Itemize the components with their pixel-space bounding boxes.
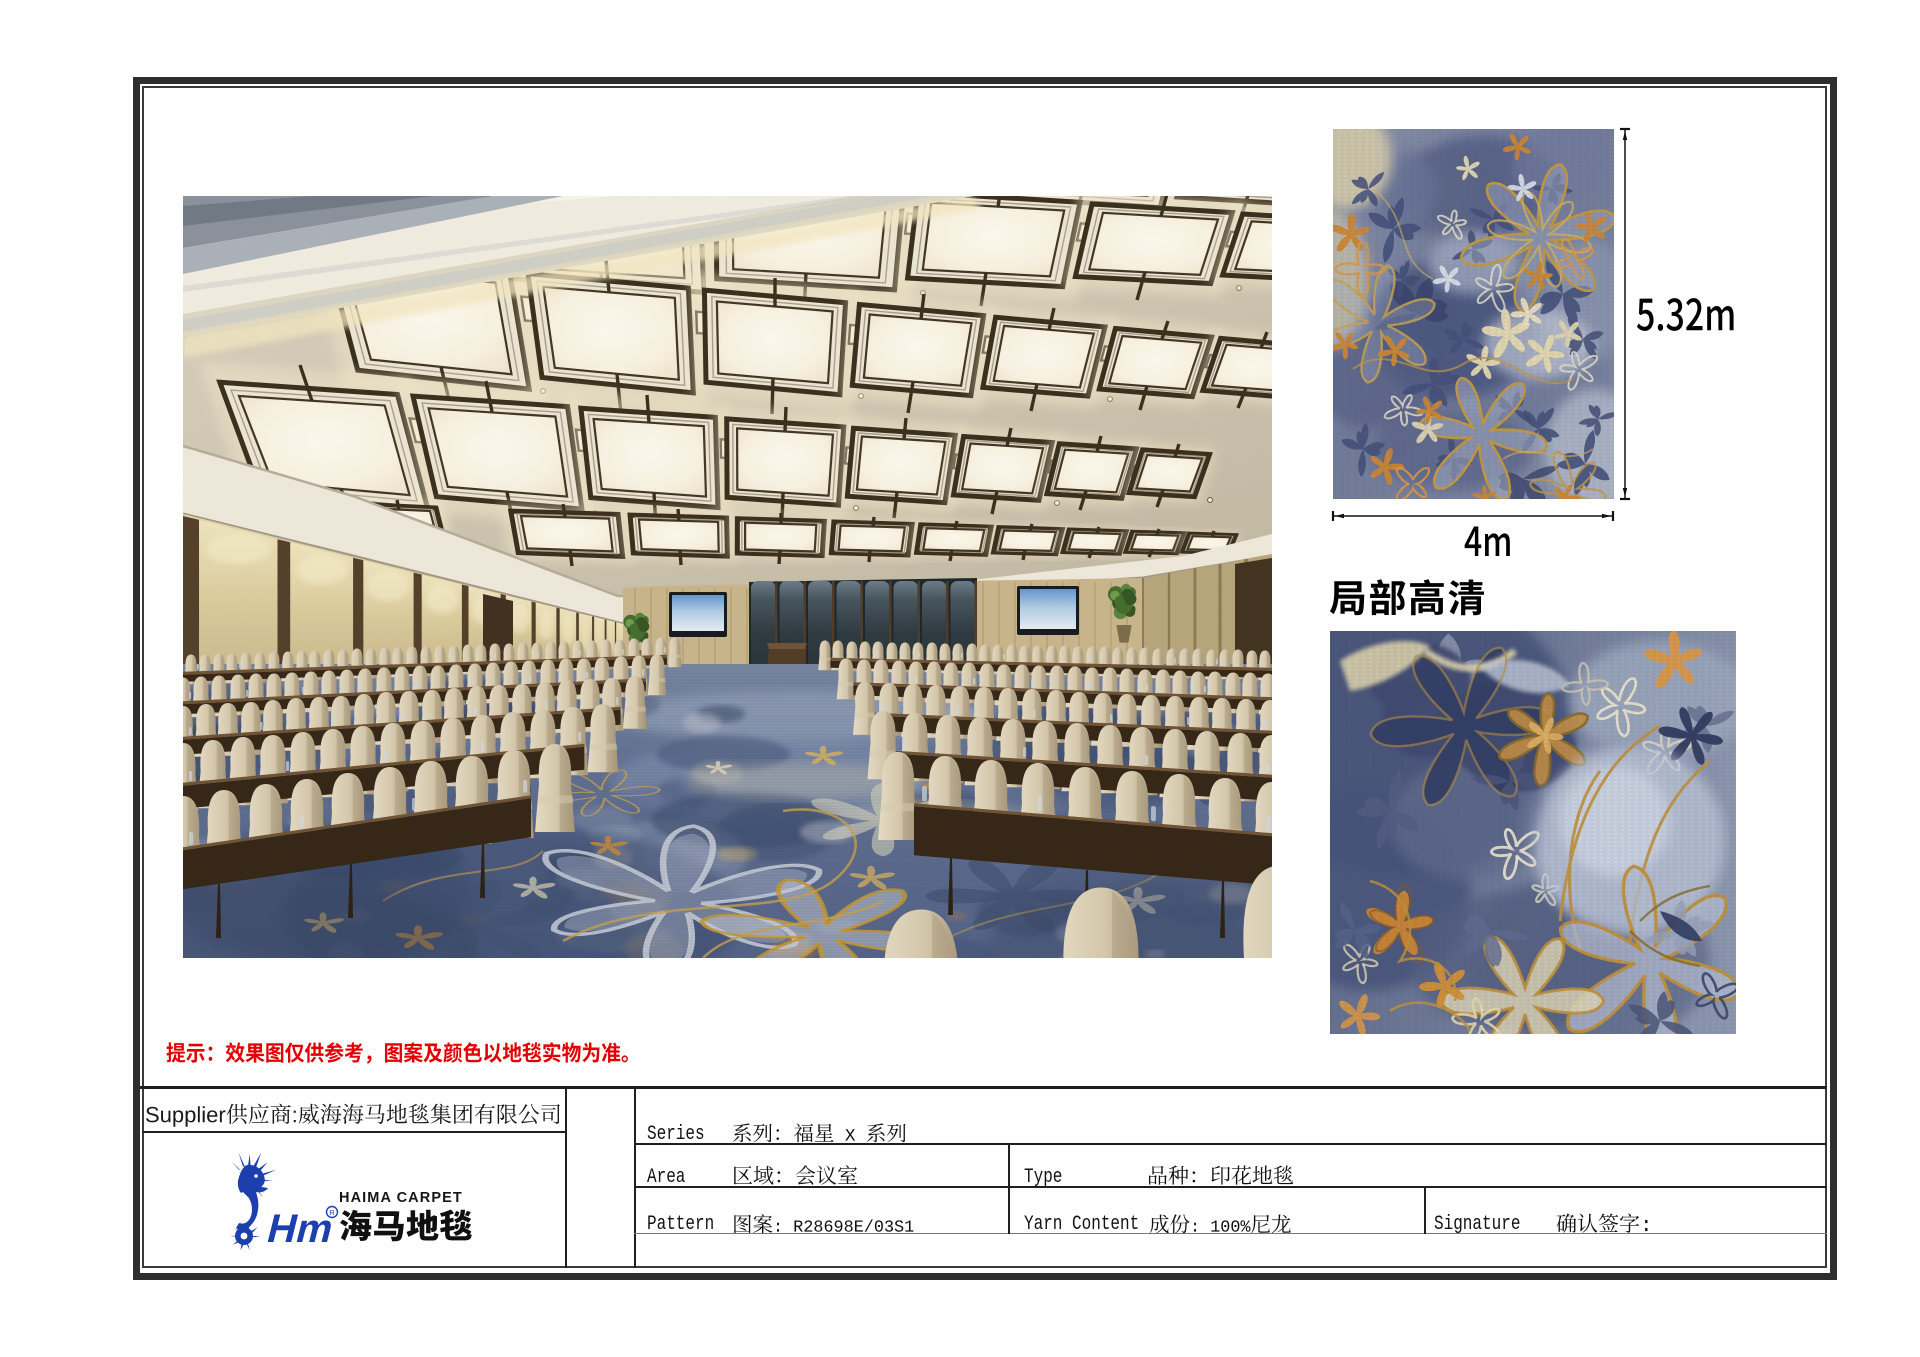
svg-text:R: R [329, 1208, 335, 1217]
